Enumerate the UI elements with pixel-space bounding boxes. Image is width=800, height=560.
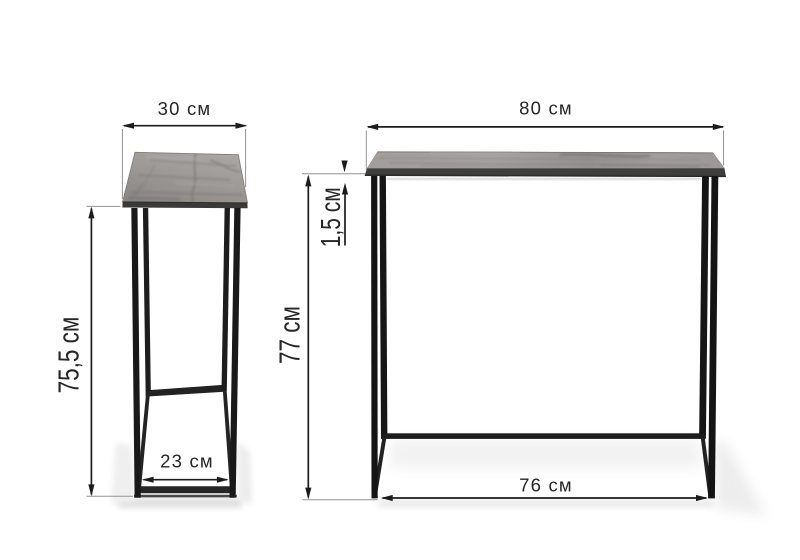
svg-text:80 см: 80 см — [519, 98, 573, 119]
svg-text:75,5 см: 75,5 см — [54, 317, 85, 394]
svg-text:30 см: 30 см — [158, 98, 212, 119]
svg-text:77 см: 77 см — [275, 306, 306, 364]
svg-text:76 см: 76 см — [519, 475, 573, 496]
svg-text:1,5 см: 1,5 см — [316, 187, 346, 247]
svg-text:23 см: 23 см — [160, 451, 214, 472]
